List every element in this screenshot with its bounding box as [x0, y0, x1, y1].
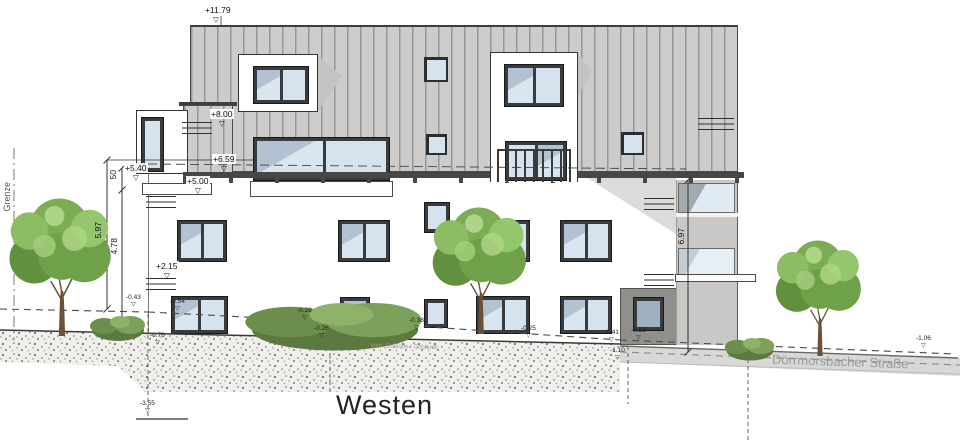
- ground-level-marker: -0.41: [604, 330, 619, 343]
- glass-pane: [201, 300, 224, 330]
- ground-level-marker: -3.55: [140, 401, 155, 414]
- ground-level-marker: -0.52: [631, 328, 646, 341]
- cross-gable-upper-window: [504, 64, 564, 107]
- ground-level-marker: -0.54: [170, 299, 185, 312]
- level-marker-ridge: +11.79: [204, 6, 232, 23]
- level-marker-attic-floor: +5.00: [186, 177, 210, 194]
- street-name: Dörrmorsbacher Straße: [772, 352, 909, 372]
- glass-pane: [624, 135, 642, 153]
- ground-level-marker: -0.25: [521, 326, 536, 339]
- window: [338, 220, 390, 262]
- glass-pane: [588, 300, 609, 330]
- ground-level-marker: -1.10: [610, 348, 625, 361]
- glass-pane: [506, 224, 527, 258]
- level-ticks: [146, 196, 176, 210]
- glass-pane: [145, 121, 160, 168]
- glass-pane: [427, 60, 446, 80]
- loggia-parapet: [250, 181, 393, 197]
- balcony-glazing-lower: [678, 248, 735, 275]
- window-small: [340, 297, 370, 331]
- roof-window: [621, 132, 644, 155]
- glass-pane: [257, 70, 280, 100]
- dormer-window: [253, 66, 309, 104]
- ground-level-marker: -1.06: [916, 336, 931, 349]
- glass-pane: [637, 301, 660, 327]
- glass-pane: [536, 68, 561, 103]
- glass-pane: [344, 301, 366, 327]
- roof-window: [426, 134, 447, 155]
- ground-level-marker: -0.26: [314, 326, 329, 339]
- glass-pane: [204, 224, 224, 258]
- glass-pane: [283, 70, 306, 100]
- ground-level-marker: -0.38: [409, 318, 424, 331]
- glass-pane: [181, 224, 201, 258]
- french-balcony-railing: [497, 149, 571, 182]
- balcony-trim: [676, 213, 738, 217]
- glass-pane: [564, 224, 585, 258]
- glass-pane: [429, 137, 445, 153]
- level-ticks: [644, 198, 674, 212]
- level-marker-tower-upper: +8.00: [210, 110, 234, 127]
- glass-pane: [428, 303, 444, 324]
- glass-pane: [588, 224, 609, 258]
- window: [177, 220, 227, 262]
- basement-window: [633, 297, 664, 331]
- drawing-title: Westen: [336, 390, 433, 421]
- level-ticks: [698, 118, 734, 132]
- ground-level-marker: -0.43: [126, 295, 141, 308]
- ground-level-marker: -0.28: [297, 308, 312, 321]
- boundary-label: Grenze: [2, 182, 12, 212]
- balcony-glazing-upper: [678, 183, 735, 213]
- dim-height-left-outer: 5.97: [94, 222, 103, 239]
- balcony-slab-right: [675, 274, 756, 282]
- level-ticks: [182, 122, 212, 136]
- window-small: [424, 202, 450, 233]
- dim-height-right: 6.97: [677, 228, 686, 245]
- glass-pane: [482, 224, 503, 258]
- roof-eave-clips: [183, 178, 744, 183]
- roof-window: [424, 57, 448, 82]
- window: [560, 220, 612, 262]
- glass-pane: [564, 300, 585, 330]
- ground-line-label: Vorh. Gelände / Gebäude: [370, 343, 438, 351]
- elevation-drawing-west: +11.79 +8.00 +6.59 +5.40 +5.00 +2.15 50 …: [0, 0, 960, 446]
- level-marker-attic-parapet: +5.40: [124, 164, 148, 181]
- level-ticks: [644, 274, 674, 288]
- ground-level-marker: -0.76: [150, 333, 165, 346]
- level-marker-tower-lower: +6.59: [212, 155, 236, 172]
- level-marker-upper-floor: +2.15: [155, 262, 179, 279]
- window-small: [424, 299, 448, 328]
- glass-pane: [366, 224, 387, 258]
- glass-pane: [480, 300, 502, 330]
- glass-pane: [508, 68, 533, 103]
- dim-height-left-inner: 4.78: [110, 238, 119, 255]
- dim-parapet-height: 50: [109, 170, 118, 179]
- window: [478, 220, 530, 262]
- glass-pane: [428, 206, 446, 229]
- level-ticks: [146, 278, 176, 292]
- glass-pane: [342, 224, 363, 258]
